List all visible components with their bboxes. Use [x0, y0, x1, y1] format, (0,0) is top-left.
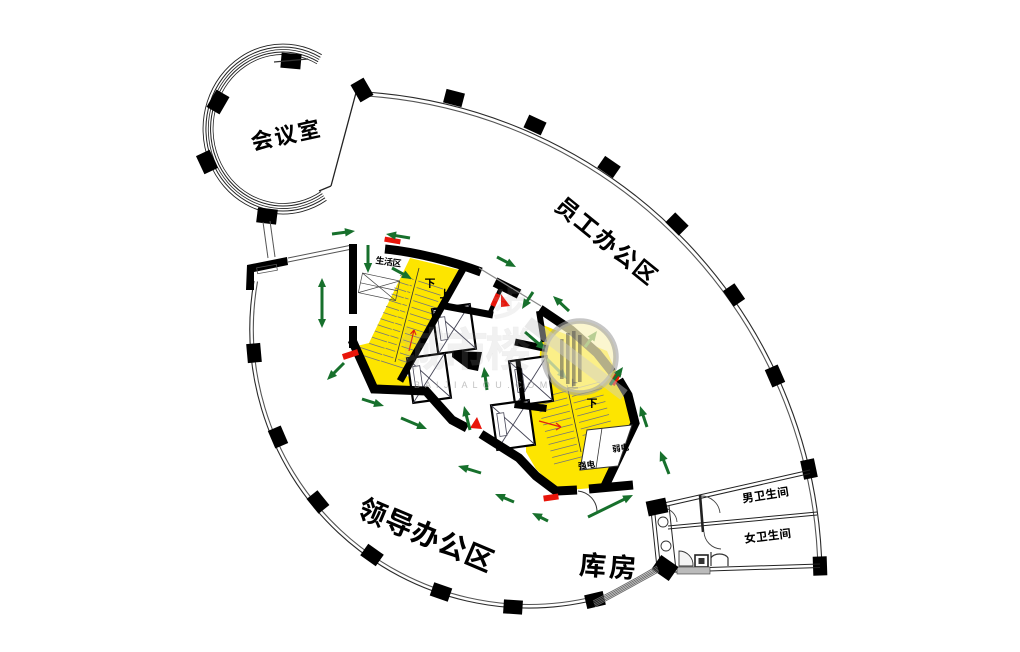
svg-text:B A I J I A L O U . C O M: B A I J I A L O U . C O M [414, 380, 549, 390]
